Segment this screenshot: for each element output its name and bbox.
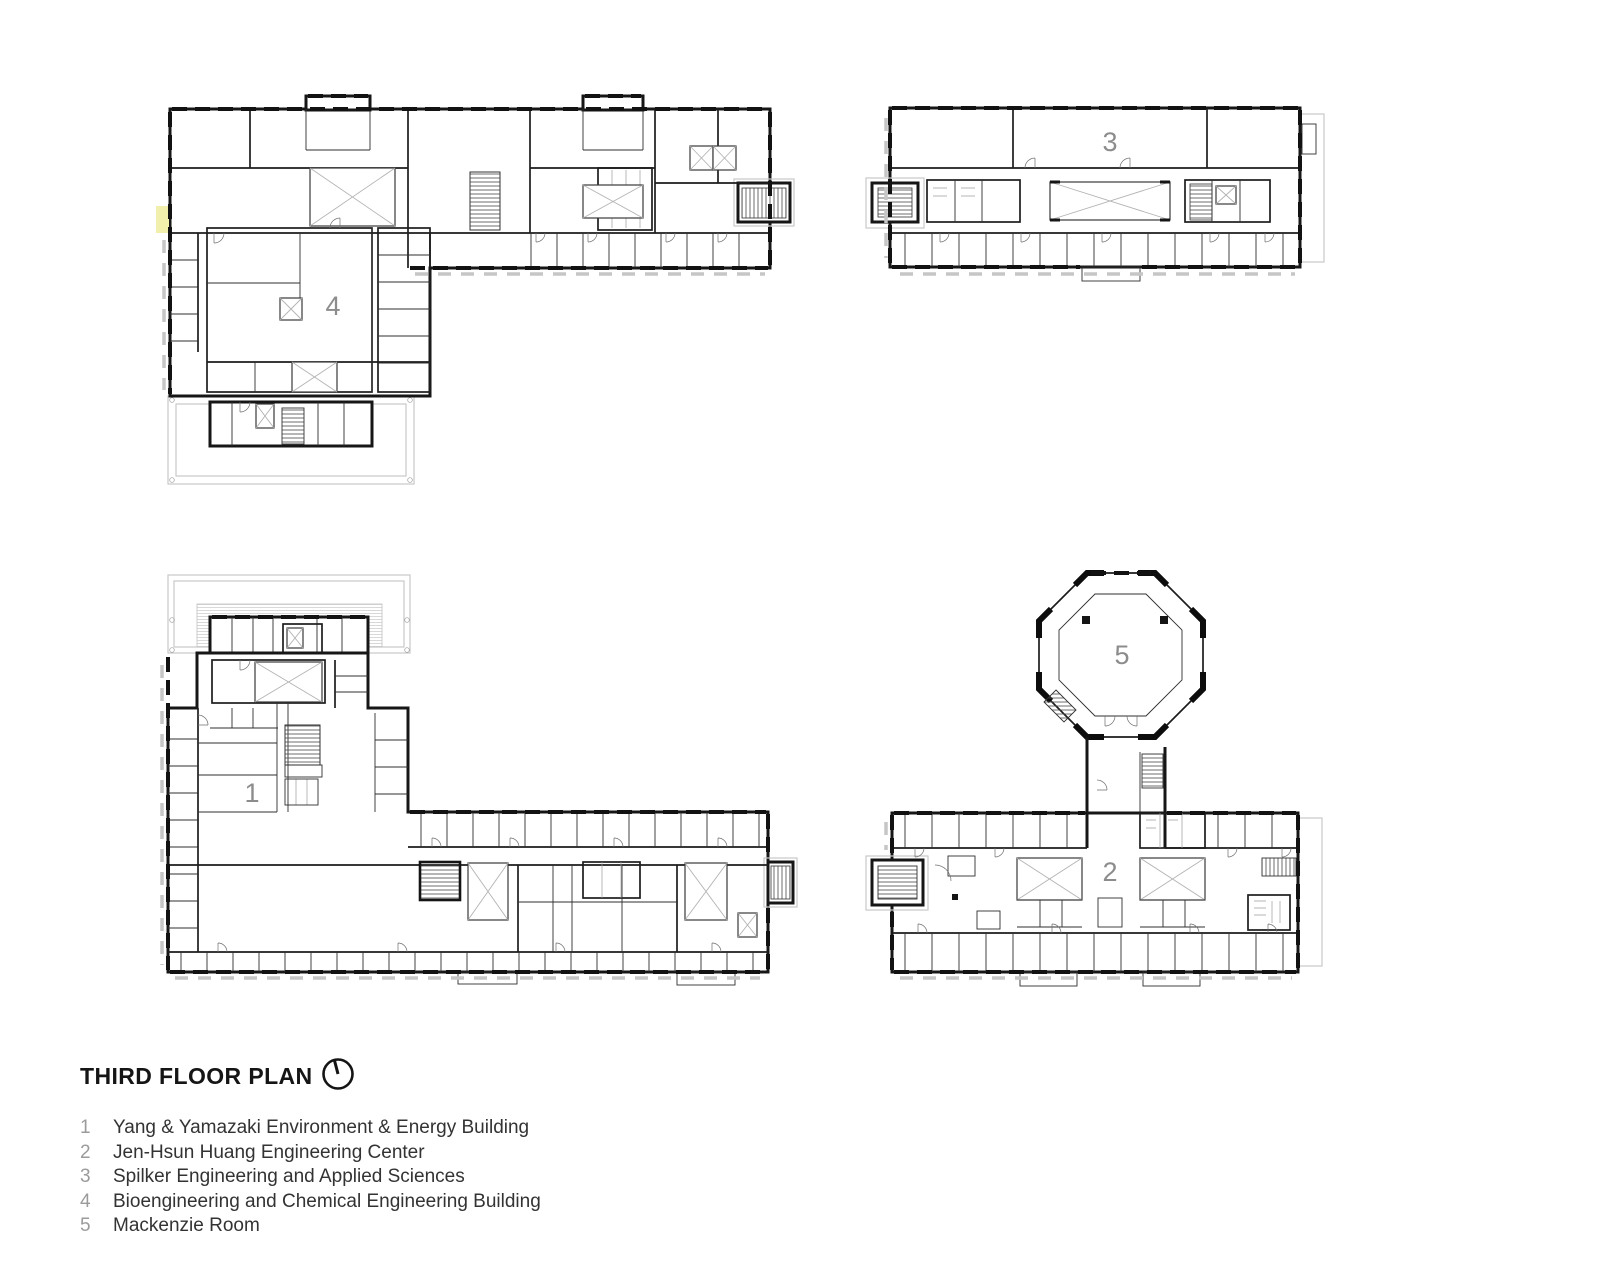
legend-item-2: 2 Jen-Hsun Huang Engineering Center (80, 1141, 720, 1166)
entry-bump (1143, 972, 1200, 986)
legend-item-name: Mackenzie Room (113, 1214, 260, 1239)
stair-pavilion (866, 856, 928, 910)
stair (285, 725, 320, 765)
legend-items: 1 Yang & Yamazaki Environment & Energy B… (80, 1116, 720, 1239)
skylight-shaft (1050, 182, 1170, 220)
legend-item-number: 5 (80, 1214, 113, 1239)
plan-building-1: 1 (162, 575, 797, 985)
plan-building-3: 3 (866, 108, 1324, 281)
floor-plan-sheet: 4 (0, 0, 1600, 1275)
legend-item-number: 3 (80, 1165, 113, 1190)
legend-item-3: 3 Spilker Engineering and Applied Scienc… (80, 1165, 720, 1190)
building-3-number: 3 (1102, 127, 1117, 157)
legend-header: THIRD FLOOR PLAN (80, 1063, 720, 1089)
legend-item-1: 1 Yang & Yamazaki Environment & Energy B… (80, 1116, 720, 1141)
legend-item-name: Yang & Yamazaki Environment & Energy Bui… (113, 1116, 529, 1141)
highlight-marker (156, 206, 169, 233)
legend-item-number: 4 (80, 1190, 113, 1215)
legend-item-4: 4 Bioengineering and Chemical Engineerin… (80, 1190, 720, 1215)
upper-room-block (210, 617, 368, 653)
stair-pavilion (734, 179, 794, 226)
plan-building-4: 4 (156, 96, 794, 484)
connector-corridor (1087, 737, 1165, 813)
building-2-number: 2 (1102, 857, 1117, 887)
stair-pavilion (866, 178, 924, 228)
building-5-number: 5 (1114, 640, 1129, 670)
north-arrow-icon (321, 1057, 355, 1091)
legend-item-name: Bioengineering and Chemical Engineering … (113, 1190, 541, 1215)
legend-item-5: 5 Mackenzie Room (80, 1214, 720, 1239)
stair (1142, 754, 1163, 788)
stair-pavilion (764, 858, 797, 907)
legend: THIRD FLOOR PLAN 1 Yang & Yamazaki Envir… (80, 1063, 720, 1239)
plan-building-2: 2 5 (866, 573, 1322, 986)
legend-item-number: 1 (80, 1116, 113, 1141)
legend-item-name: Spilker Engineering and Applied Sciences (113, 1165, 465, 1190)
annex (210, 402, 372, 446)
legend-item-name: Jen-Hsun Huang Engineering Center (113, 1141, 425, 1166)
stair (470, 172, 500, 230)
legend-item-number: 2 (80, 1141, 113, 1166)
elevator-shafts (690, 146, 736, 170)
stair (420, 862, 460, 900)
building-1-number: 1 (244, 778, 259, 808)
building-4-number: 4 (325, 291, 340, 321)
sheet-title: THIRD FLOOR PLAN (80, 1063, 720, 1089)
